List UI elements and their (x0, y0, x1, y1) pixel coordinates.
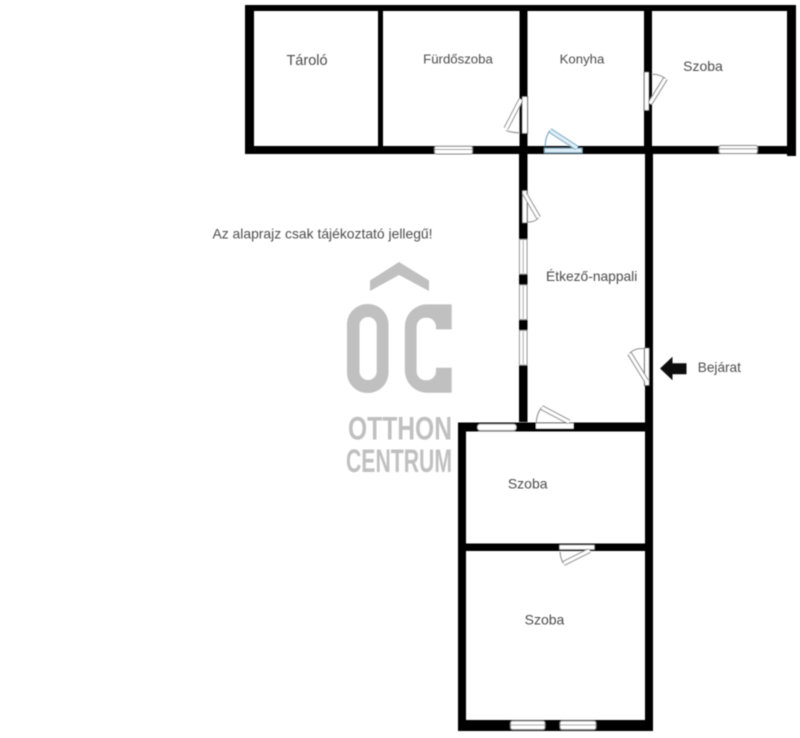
svg-text:Szoba: Szoba (508, 476, 548, 492)
svg-text:Étkező-nappali: Étkező-nappali (546, 268, 637, 284)
svg-text:Tároló: Tároló (286, 53, 327, 69)
svg-text:Az alaprajz csak tájékoztató j: Az alaprajz csak tájékoztató jellegű! (212, 225, 432, 241)
svg-text:OTTHON: OTTHON (348, 411, 452, 447)
svg-text:Bejárat: Bejárat (698, 360, 741, 375)
svg-text:Szoba: Szoba (683, 58, 723, 74)
svg-text:CENTRUM: CENTRUM (346, 443, 452, 479)
svg-text:Szoba: Szoba (525, 612, 565, 628)
svg-text:Konyha: Konyha (560, 52, 605, 67)
svg-text:Fürdőszoba: Fürdőszoba (423, 52, 493, 67)
